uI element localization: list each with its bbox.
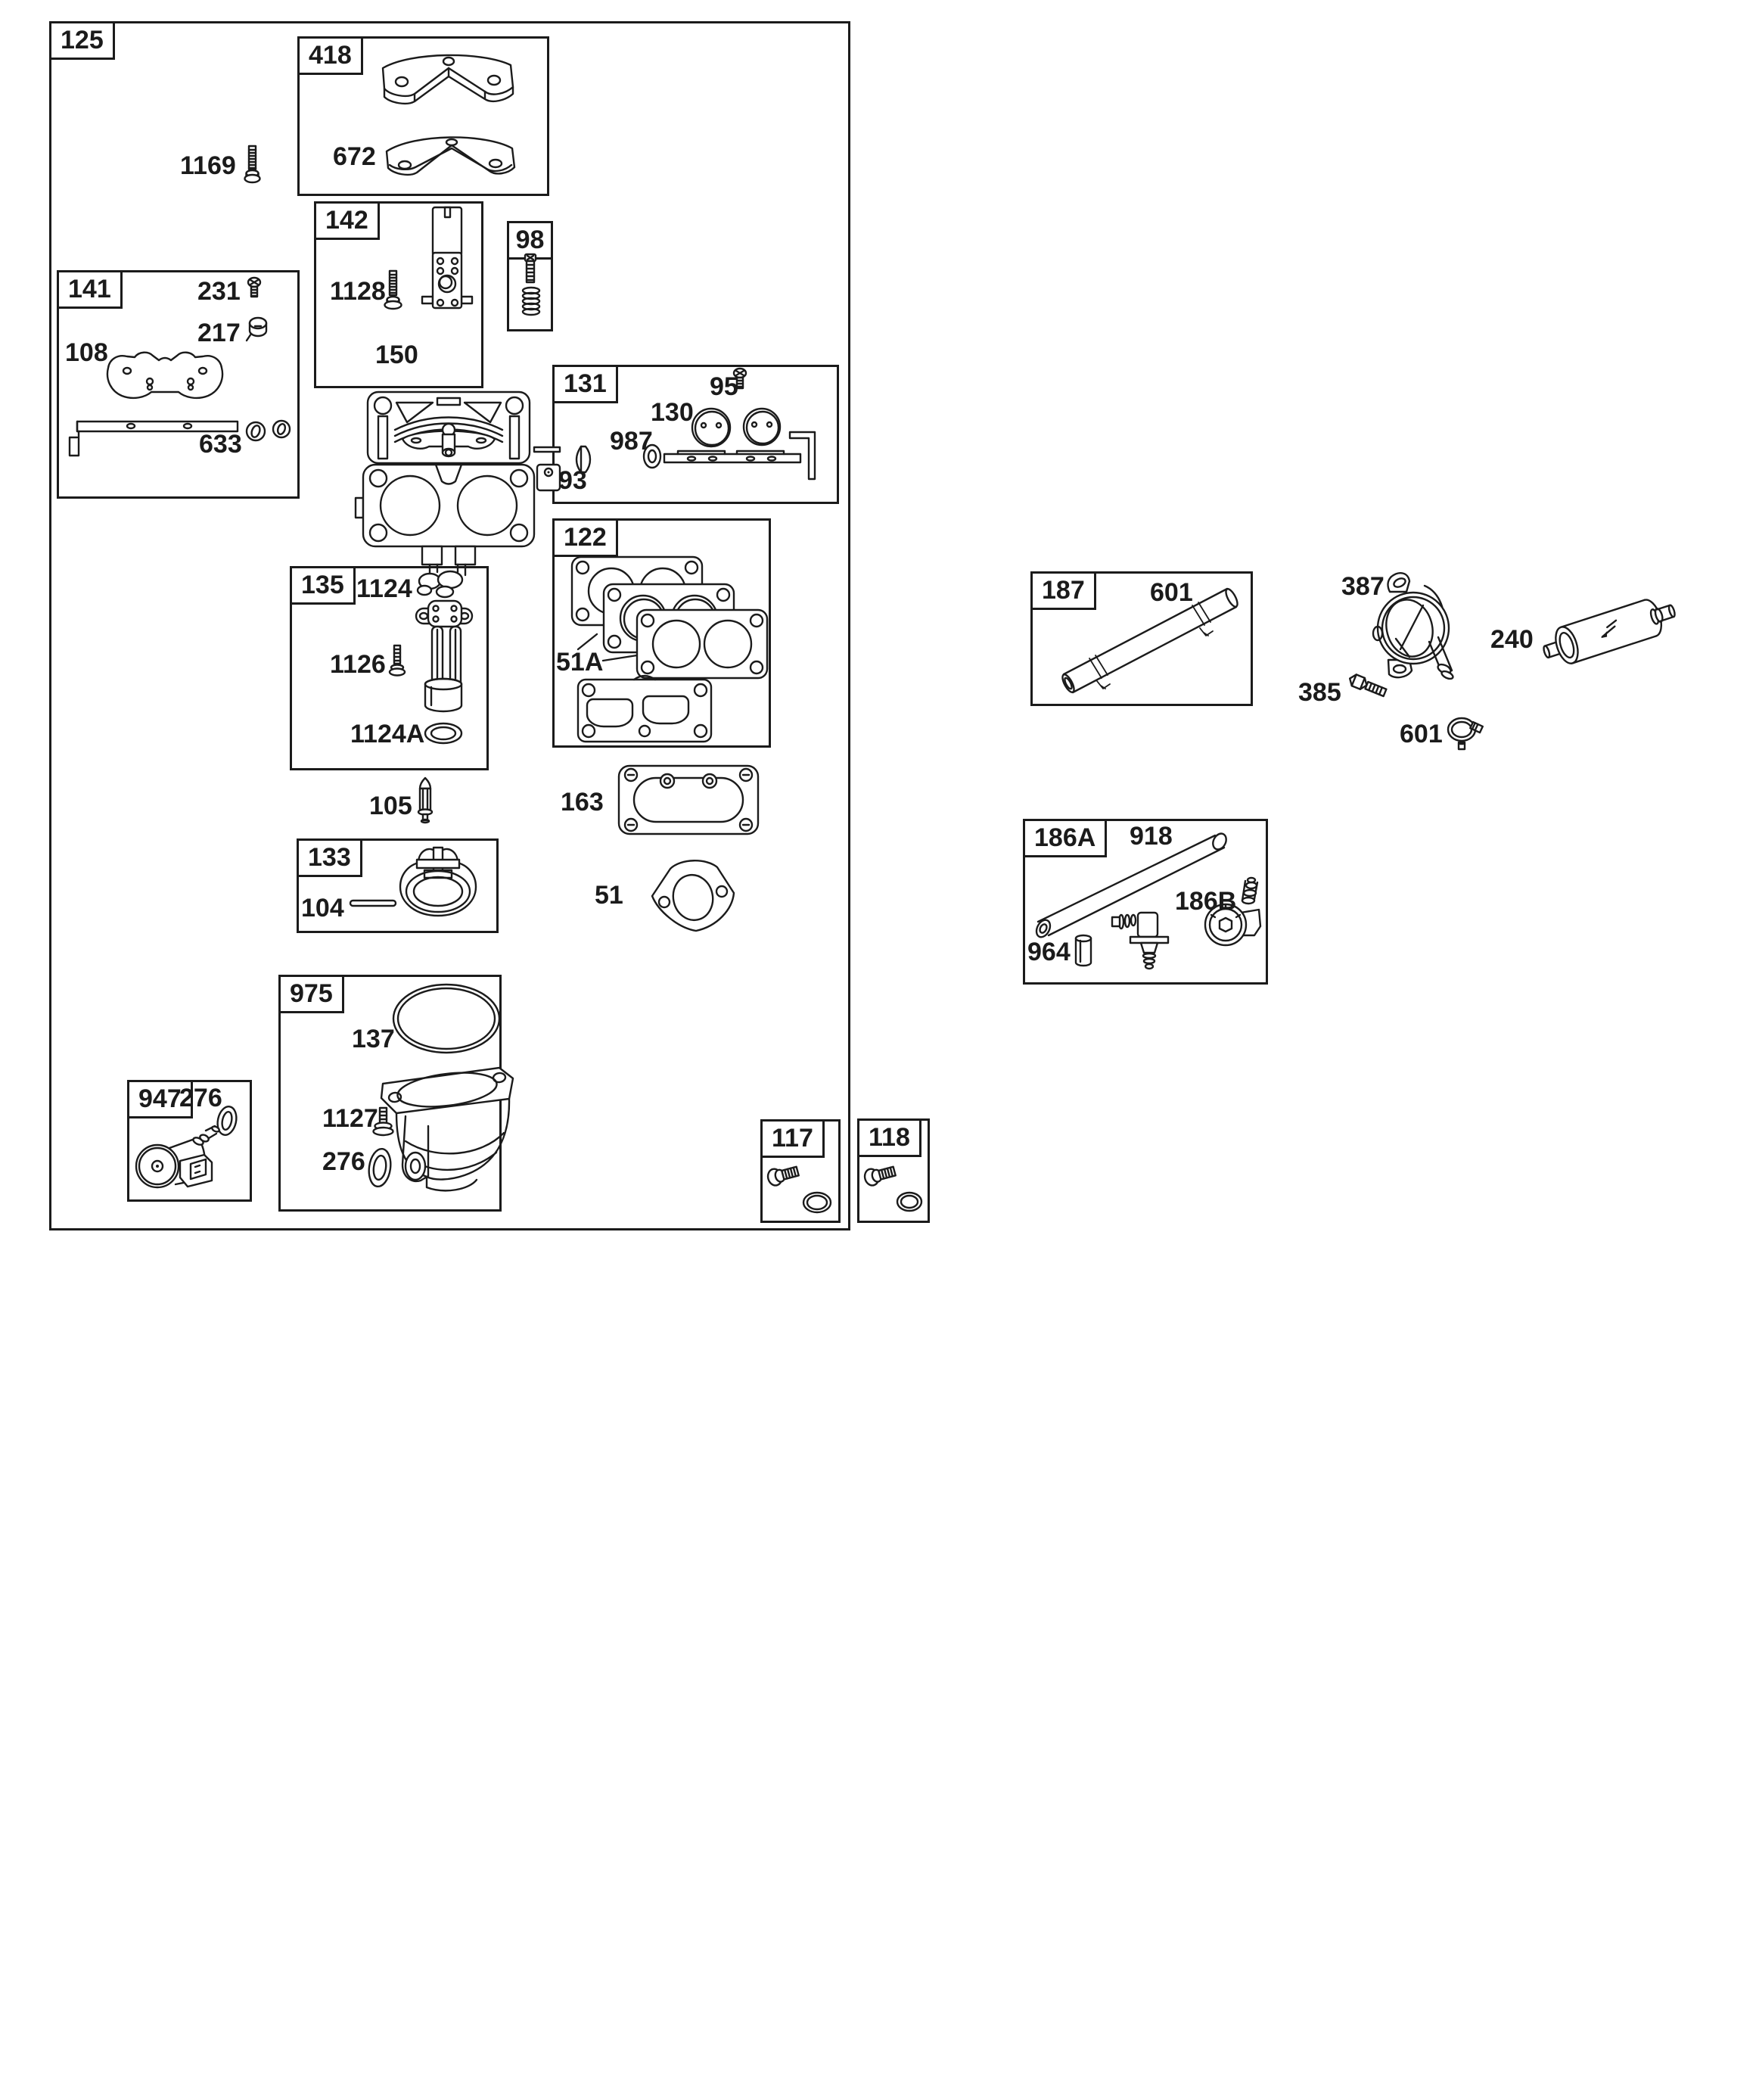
part-label-1128: 1128 [330,278,386,304]
part-label-51: 51 [595,882,623,908]
bolt-oring-118-drawing [859,1156,932,1218]
part-label-108: 108 [65,340,108,366]
bracket-142-drawing [422,207,472,313]
group-tag-117: 117 [760,1119,825,1158]
float-133-drawing [344,842,496,926]
clip-217-drawing [245,315,271,345]
group-label-141: 141 [68,275,111,303]
part-label-137: 137 [352,1026,395,1052]
screw-1169-drawing [239,144,265,186]
part-label-130: 130 [651,400,694,425]
group-tag-118: 118 [857,1118,921,1157]
part-label-1124: 1124 [356,576,412,602]
part-label-51A: 51A [556,649,603,675]
part-label-918: 918 [1130,823,1173,849]
group-label-117: 117 [772,1124,813,1153]
group-label-125: 125 [61,26,104,54]
part-label-387: 387 [1341,574,1385,599]
part-label-276: 276 [322,1149,365,1174]
screw-spring-98-drawing [519,254,545,319]
group-tag-125: 125 [49,21,115,60]
part-label-601-hose: 601 [1150,580,1193,605]
group-tag-418: 418 [297,36,363,75]
group-tag-131: 131 [552,365,618,403]
group-label-142: 142 [325,206,368,235]
part-label-672: 672 [333,144,376,170]
part-label-1169: 1169 [180,153,236,179]
part-label-105: 105 [369,793,412,819]
air-cleaner-plate-drawing [377,45,517,123]
plate-108-drawing [104,348,225,405]
gasket-51-drawing [646,855,738,937]
group-tag-142: 142 [314,201,380,240]
group-label-118: 118 [869,1123,910,1152]
group-label-418: 418 [309,41,352,70]
part-label-633: 633 [199,431,242,457]
group-tag-141: 141 [57,270,123,309]
part-label-95: 95 [710,374,738,400]
part-label-231: 231 [197,278,241,304]
part-label-987: 987 [610,428,653,454]
part-label-186B: 186B [1175,888,1236,914]
group-label-98: 98 [516,226,545,254]
part-label-1126: 1126 [330,652,386,677]
fuel-filter-240-drawing [1542,589,1678,674]
part-label-964: 964 [1027,939,1071,965]
group-label-131: 131 [564,369,607,398]
part-label-217: 217 [197,320,241,346]
part-label-601-clamp: 601 [1400,721,1443,747]
fuel-hose-601-drawing [1038,577,1247,698]
parts-diagram-canvas: 125 418 142 98 141 131 122 135 133 975 9… [0,0,1759,2100]
throttle-shaft-drawing [663,428,823,483]
part-label-163: 163 [561,789,604,815]
gasket-672-drawing [381,126,518,189]
needle-valve-105-drawing [413,776,437,823]
part-label-93: 93 [558,468,587,493]
part-label-104: 104 [301,895,344,921]
part-label-1124A: 1124A [350,721,424,747]
part-label-385: 385 [1298,680,1341,705]
fuel-pump-387-drawing [1366,566,1494,691]
bolt-oring-117-drawing [763,1156,835,1218]
rod-633-drawing [67,409,294,459]
hose-clamp-601-drawing [1442,711,1484,751]
part-label-1127: 1127 [322,1106,378,1131]
part-label-276-solenoid: 276 [179,1085,222,1111]
part-label-240: 240 [1490,627,1534,652]
carburetor-body-drawing [356,390,545,557]
gasket-stack-122-drawing [561,528,778,748]
gasket-163-drawing [616,763,761,838]
bolt-385-drawing [1344,674,1391,714]
screw-231-drawing [245,277,263,301]
part-label-150: 150 [375,342,418,368]
fuel-bowl-975-drawing [281,978,516,1209]
